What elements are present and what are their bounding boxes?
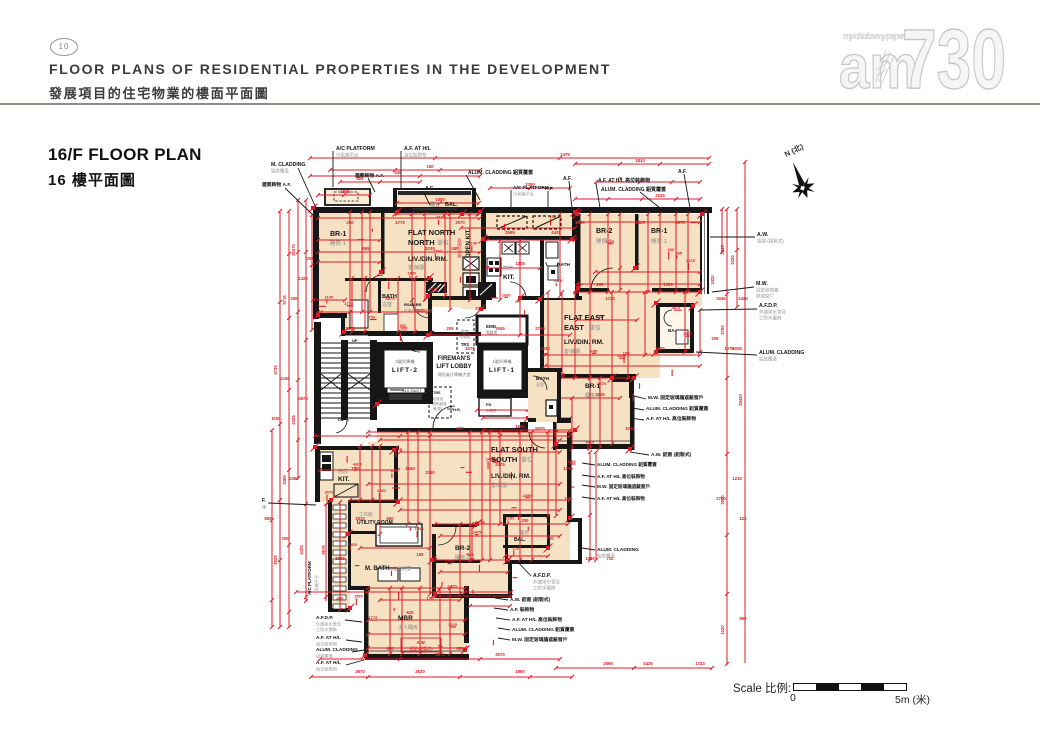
svg-text:M.W. 固定玻璃牆遮蔽窗戶: M.W. 固定玻璃牆遮蔽窗戶 [648, 394, 704, 401]
svg-text:2420: 2420 [447, 584, 457, 589]
svg-text:BR-1: BR-1 [330, 231, 346, 238]
svg-text:FLAT EAST: FLAT EAST [564, 313, 605, 322]
svg-text:1300: 1300 [585, 556, 595, 561]
svg-text:1號升降機: 1號升降機 [492, 358, 512, 365]
svg-text:150: 150 [623, 351, 630, 356]
svg-text:2420: 2420 [738, 296, 748, 301]
svg-text:3225: 3225 [567, 459, 576, 464]
svg-text:高位裝飾物: 高位裝飾物 [316, 665, 337, 672]
svg-text:3045: 3045 [495, 326, 505, 331]
svg-text:2150: 2150 [280, 376, 290, 381]
svg-text:A.F.D.P.: A.F.D.P. [533, 573, 552, 579]
svg-text:645: 645 [591, 348, 598, 353]
svg-text:1100: 1100 [271, 416, 281, 421]
svg-text:A.F.D.P.: A.F.D.P. [316, 615, 333, 621]
svg-text:垃圾及: 垃圾及 [433, 396, 444, 401]
svg-text:2350: 2350 [289, 476, 299, 481]
svg-text:LIV./DIN. RM.: LIV./DIN. RM. [491, 473, 531, 480]
svg-text:F.: F. [262, 498, 267, 504]
svg-text:M.W. 固定玻璃牆遮蔽窗戶: M.W. 固定玻璃牆遮蔽窗戶 [597, 483, 650, 490]
svg-text:高位裝飾物: 高位裝飾物 [316, 640, 337, 647]
svg-text:客/飯廳: 客/飯廳 [491, 482, 507, 489]
svg-text:1213: 1213 [732, 476, 742, 481]
svg-text:高位裝飾物: 高位裝飾物 [404, 152, 427, 159]
svg-text:2475: 2475 [686, 258, 695, 263]
svg-text:BR-1: BR-1 [585, 383, 601, 390]
svg-text:BAL.: BAL. [445, 202, 458, 208]
svg-text:1000: 1000 [502, 292, 511, 297]
svg-text:208: 208 [564, 496, 572, 501]
svg-text:5575: 5575 [321, 545, 326, 555]
svg-text:1205: 1205 [515, 261, 525, 266]
svg-text:1000: 1000 [625, 426, 635, 431]
svg-text:UP: UP [352, 338, 358, 343]
svg-text:205: 205 [446, 326, 454, 331]
svg-text:LIFT LOBBY: LIFT LOBBY [436, 364, 471, 370]
svg-text:330: 330 [549, 214, 556, 219]
svg-text:3675: 3675 [298, 396, 308, 401]
svg-text:露台: 露台 [520, 529, 529, 536]
svg-text:150: 150 [416, 552, 424, 557]
svg-text:鋁質覆蓋: 鋁質覆蓋 [759, 356, 777, 363]
svg-text:645: 645 [675, 250, 682, 255]
svg-text:NORTH: NORTH [408, 238, 435, 247]
svg-text:1555: 1555 [348, 542, 357, 547]
svg-text:2420: 2420 [730, 255, 735, 265]
svg-text:A.W.: A.W. [416, 640, 425, 645]
svg-text:205: 205 [711, 336, 719, 341]
svg-text:125: 125 [739, 516, 747, 521]
svg-text:1100: 1100 [325, 294, 333, 299]
svg-text:A.F. AT H/L 高位裝飾物: A.F. AT H/L 高位裝飾物 [597, 495, 645, 502]
svg-text:物料回收: 物料回收 [433, 401, 447, 406]
svg-text:700: 700 [546, 536, 554, 541]
svg-text:鋁質覆蓋: 鋁質覆蓋 [316, 652, 333, 659]
svg-text:2570: 2570 [720, 495, 725, 505]
svg-text:1555: 1555 [415, 526, 424, 531]
svg-text:2160: 2160 [425, 470, 435, 475]
svg-text:A.F. AT H/L: A.F. AT H/L [404, 146, 432, 152]
svg-text:208: 208 [596, 282, 604, 287]
svg-text:860: 860 [264, 516, 272, 521]
svg-text:DN: DN [338, 418, 344, 422]
svg-text:2300: 2300 [554, 278, 563, 283]
svg-text:單位: 單位 [521, 456, 533, 464]
svg-text:ELV. DUCT: ELV. DUCT [402, 389, 422, 393]
svg-text:3045: 3045 [716, 296, 726, 301]
svg-text:2030: 2030 [540, 346, 550, 351]
svg-text:3225: 3225 [448, 622, 457, 627]
svg-text:1723: 1723 [445, 559, 454, 564]
svg-text:LIFT-2: LIFT-2 [392, 367, 418, 374]
svg-text:1810: 1810 [635, 158, 645, 163]
svg-text:1205: 1205 [563, 466, 573, 471]
svg-text:外牆排水管及: 外牆排水管及 [533, 579, 560, 586]
svg-text:600: 600 [456, 426, 464, 431]
svg-text:3570: 3570 [355, 669, 365, 674]
svg-text:A/C PLATFORM: A/C PLATFORM [307, 561, 312, 595]
svg-text:4425: 4425 [436, 215, 445, 220]
svg-text:之防水層飾: 之防水層飾 [316, 626, 337, 633]
svg-text:150: 150 [512, 545, 519, 550]
svg-text:330: 330 [521, 518, 529, 523]
svg-text:MBR: MBR [398, 615, 413, 622]
svg-text:4425: 4425 [291, 415, 296, 425]
svg-text:單位: 單位 [437, 239, 449, 247]
svg-text:M. CLADDING: M. CLADDING [271, 162, 306, 168]
svg-text:鋁質覆蓋: 鋁質覆蓋 [597, 552, 615, 559]
svg-text:廚房: 廚房 [503, 265, 513, 272]
svg-text:2300: 2300 [683, 331, 692, 336]
svg-text:睡房-1: 睡房-1 [651, 237, 667, 245]
svg-text:ALUM. CLADDING: ALUM. CLADDING [597, 547, 639, 553]
svg-text:2350: 2350 [377, 488, 386, 493]
svg-text:2595: 2595 [505, 230, 515, 235]
svg-text:2595: 2595 [603, 661, 613, 666]
svg-text:A.F. AT H/L 高位裝飾物: A.F. AT H/L 高位裝飾物 [646, 415, 696, 422]
svg-text:36370: 36370 [291, 244, 296, 256]
svg-text:鋁窗 (鋁製式): 鋁窗 (鋁製式) [757, 238, 784, 245]
svg-text:露台: 露台 [430, 201, 440, 208]
svg-text:3420: 3420 [710, 275, 715, 285]
svg-text:1723: 1723 [695, 661, 705, 666]
svg-text:FIREMAN'S: FIREMAN'S [438, 356, 471, 362]
svg-text:LIFT-1: LIFT-1 [489, 367, 515, 374]
svg-text:主人浴室: 主人浴室 [393, 565, 411, 572]
svg-text:LIV./DIN. RM.: LIV./DIN. RM. [408, 256, 448, 263]
svg-text:A.F. AT H/L 高位裝飾物: A.F. AT H/L 高位裝飾物 [598, 177, 650, 184]
svg-text:FLAT NORTH: FLAT NORTH [408, 228, 455, 237]
svg-text:睡房-2: 睡房-2 [455, 554, 470, 561]
svg-text:UTILITY ROOM: UTILITY ROOM [357, 520, 393, 526]
svg-text:睡房-1: 睡房-1 [330, 239, 346, 247]
svg-text:4425: 4425 [353, 462, 362, 467]
svg-text:1100: 1100 [351, 466, 361, 471]
svg-text:樓: 樓 [262, 504, 266, 511]
svg-text:A/C PLATFORM: A/C PLATFORM [336, 146, 375, 152]
svg-text:330: 330 [667, 247, 674, 252]
svg-text:1723: 1723 [605, 296, 615, 301]
svg-text:ALUM. CLADDING 鋁質覆蓋: ALUM. CLADDING 鋁質覆蓋 [512, 626, 575, 633]
svg-text:RS&MRR: RS&MRR [404, 302, 422, 307]
svg-text:655: 655 [362, 246, 370, 251]
svg-text:A.F. AT H/L: A.F. AT H/L [316, 635, 341, 641]
svg-text:1775: 1775 [435, 652, 445, 657]
svg-text:1650: 1650 [515, 424, 525, 429]
svg-text:2620: 2620 [415, 669, 425, 674]
svg-text:2150: 2150 [405, 466, 415, 471]
svg-text:3465: 3465 [282, 475, 287, 485]
svg-text:150: 150 [426, 164, 434, 169]
svg-text:ALUM. CLADDING: ALUM. CLADDING [759, 350, 804, 356]
svg-text:ALUM. CLADDING: ALUM. CLADDING [316, 647, 358, 653]
svg-text:鋁窗 (鋁製式): 鋁窗 (鋁製式) [409, 646, 433, 651]
svg-text:M.W.: M.W. [756, 281, 768, 287]
svg-text:A.F. AT H/L 高位裝飾物: A.F. AT H/L 高位裝飾物 [512, 616, 562, 623]
svg-text:3070: 3070 [455, 220, 465, 225]
svg-text:BR-2: BR-2 [596, 228, 612, 235]
svg-text:A.F.: A.F. [545, 186, 554, 192]
svg-text:1300: 1300 [663, 282, 673, 287]
svg-text:330: 330 [290, 296, 298, 301]
svg-text:2350: 2350 [523, 493, 532, 498]
svg-text:5715: 5715 [282, 295, 287, 305]
svg-text:2300: 2300 [386, 277, 395, 282]
svg-text:645: 645 [391, 468, 398, 473]
svg-text:75: 75 [438, 644, 443, 649]
svg-text:ALUM. CLADDING 鋁質覆蓋: ALUM. CLADDING 鋁質覆蓋 [646, 405, 709, 412]
svg-text:臨時: 臨時 [461, 329, 469, 334]
svg-text:1775: 1775 [344, 301, 353, 306]
svg-text:BAL.: BAL. [514, 537, 526, 543]
svg-text:950: 950 [386, 646, 394, 651]
svg-text:睡房-2: 睡房-2 [596, 237, 612, 245]
svg-text:EAST: EAST [564, 323, 584, 332]
svg-text:150: 150 [399, 323, 406, 328]
svg-text:鋁質覆蓋: 鋁質覆蓋 [271, 168, 289, 175]
svg-text:1775: 1775 [395, 220, 405, 225]
svg-text:4425: 4425 [586, 440, 595, 445]
svg-text:1775: 1775 [368, 615, 377, 620]
svg-text:M.W. 固定玻璃牆遮蔽窗戶: M.W. 固定玻璃牆遮蔽窗戶 [512, 636, 568, 643]
svg-text:之防水層飾: 之防水層飾 [759, 315, 782, 322]
svg-text:250: 250 [346, 220, 354, 225]
svg-text:A.F. 裝飾物: A.F. 裝飾物 [510, 606, 534, 613]
svg-text:冷氣機平台: 冷氣機平台 [313, 575, 319, 595]
svg-text:KIT.: KIT. [338, 476, 350, 483]
svg-text:N (北): N (北) [782, 141, 805, 159]
svg-text:2475: 2475 [560, 152, 570, 157]
svg-text:2475: 2475 [473, 530, 482, 535]
svg-text:浴室: 浴室 [536, 381, 544, 387]
svg-text:消防員升降機大堂: 消防員升降機大堂 [437, 371, 471, 378]
svg-text:BR-1: BR-1 [651, 228, 667, 235]
svg-text:外牆排水管及: 外牆排水管及 [759, 309, 786, 316]
svg-text:ALUM. CLADDING 鋁質覆蓋: ALUM. CLADDING 鋁質覆蓋 [597, 461, 657, 468]
svg-text:BATH: BATH [382, 294, 397, 300]
svg-text:廚房: 廚房 [338, 468, 348, 475]
svg-text:A.W. 鋁窗 (鋁製式): A.W. 鋁窗 (鋁製式) [510, 596, 551, 603]
svg-text:A.F.D.P.: A.F.D.P. [759, 303, 778, 309]
svg-text:LIV./DIN. RM.: LIV./DIN. RM. [564, 339, 604, 346]
svg-text:2620: 2620 [415, 308, 425, 313]
svg-text:開放式廚房: 開放式廚房 [456, 238, 462, 258]
svg-text:A.W.: A.W. [757, 232, 769, 238]
svg-text:主人睡房: 主人睡房 [398, 624, 418, 631]
svg-text:客/飯廳: 客/飯廳 [564, 348, 580, 355]
svg-text:1860: 1860 [515, 669, 525, 674]
svg-text:5025: 5025 [732, 346, 742, 351]
svg-text:SOUTH: SOUTH [491, 455, 517, 464]
svg-text:1425: 1425 [298, 276, 308, 281]
svg-text:3070: 3070 [408, 271, 417, 276]
svg-text:2925: 2925 [273, 555, 278, 565]
svg-text:單位: 單位 [589, 324, 601, 332]
svg-text:1555: 1555 [340, 189, 350, 194]
svg-text:3230: 3230 [335, 556, 345, 561]
svg-text:1075: 1075 [465, 346, 475, 351]
svg-text:5025: 5025 [535, 426, 545, 431]
svg-text:A.F.: A.F. [563, 176, 573, 182]
svg-text:A.W. 鋁窗 (鋁製式): A.W. 鋁窗 (鋁製式) [651, 451, 692, 458]
svg-text:3070: 3070 [495, 652, 505, 657]
svg-text:250: 250 [306, 256, 314, 261]
svg-text:2150: 2150 [433, 248, 442, 253]
svg-text:A.F. AT H/L: A.F. AT H/L [316, 660, 341, 666]
svg-text:1860: 1860 [345, 326, 355, 331]
svg-text:之防水層飾: 之防水層飾 [533, 585, 556, 592]
svg-text:客/飯廳: 客/飯廳 [408, 264, 424, 271]
svg-text:455: 455 [336, 596, 344, 601]
svg-text:冷氣機平台: 冷氣機平台 [513, 190, 534, 197]
svg-text:睡房-1: 睡房-1 [585, 392, 600, 399]
svg-text:4425: 4425 [299, 545, 304, 555]
svg-text:3675: 3675 [675, 220, 685, 225]
svg-text:BA.: BA. [668, 328, 676, 333]
svg-text:ALUM. CLADDING 鋁質覆蓋: ALUM. CLADDING 鋁質覆蓋 [468, 169, 533, 176]
svg-text:700: 700 [281, 536, 289, 541]
svg-text:4425: 4425 [551, 230, 561, 235]
svg-text:3675: 3675 [672, 305, 681, 310]
svg-text:A/C PLATFORM: A/C PLATFORM [513, 185, 549, 191]
svg-text:3675: 3675 [429, 286, 438, 291]
svg-text:H.R.: H.R. [453, 407, 461, 412]
svg-text:浴室: 浴室 [382, 301, 392, 308]
svg-text:700: 700 [369, 315, 376, 320]
svg-text:ALUM. CLADDING 鋁質覆蓋: ALUM. CLADDING 鋁質覆蓋 [601, 186, 666, 193]
svg-text:玻璃窗戶: 玻璃窗戶 [756, 293, 774, 300]
svg-text:125: 125 [426, 596, 434, 601]
svg-text:KIT.: KIT. [503, 274, 515, 281]
svg-text:OPEN KIT.: OPEN KIT. [466, 228, 472, 258]
svg-text:2475: 2475 [398, 328, 407, 333]
svg-text:A.F.: A.F. [678, 169, 688, 175]
svg-text:建築飾物 A.F.: 建築飾物 A.F. [354, 172, 384, 179]
svg-text:2790: 2790 [535, 326, 545, 331]
svg-text:3070: 3070 [325, 490, 334, 495]
svg-text:TRS: TRS [433, 391, 441, 395]
svg-text:工作間: 工作間 [359, 511, 373, 518]
svg-text:固定玻璃牆: 固定玻璃牆 [756, 287, 779, 294]
svg-text:FLAT SOUTH: FLAT SOUTH [491, 445, 538, 454]
svg-text:冷氣機平台: 冷氣機平台 [336, 152, 359, 159]
svg-text:2350: 2350 [575, 220, 585, 225]
svg-text:1020: 1020 [720, 625, 725, 635]
svg-text:4730: 4730 [273, 365, 278, 375]
svg-text:BATH: BATH [557, 262, 571, 268]
svg-text:建築飾物 A.F.: 建築飾物 A.F. [261, 181, 291, 188]
svg-text:1425: 1425 [635, 220, 645, 225]
svg-text:房(規): 房(規) [433, 406, 442, 411]
svg-text:M. BATH: M. BATH [365, 566, 390, 572]
svg-text:950: 950 [739, 616, 747, 621]
svg-text:A.F.: A.F. [425, 186, 435, 192]
svg-text:28420: 28420 [738, 394, 743, 406]
svg-text:4425: 4425 [643, 661, 653, 666]
svg-text:2790: 2790 [720, 325, 725, 335]
svg-text:2號升降機: 2號升降機 [395, 358, 415, 365]
svg-text:BR-2: BR-2 [455, 545, 471, 552]
svg-text:A.F. AT H/L 高位裝飾物: A.F. AT H/L 高位裝飾物 [597, 473, 645, 480]
svg-text:3225: 3225 [655, 193, 665, 198]
svg-text:3045: 3045 [720, 245, 725, 255]
svg-text:2150: 2150 [506, 515, 515, 520]
svg-text:1555: 1555 [354, 593, 363, 598]
svg-text:PD: PD [486, 402, 492, 407]
